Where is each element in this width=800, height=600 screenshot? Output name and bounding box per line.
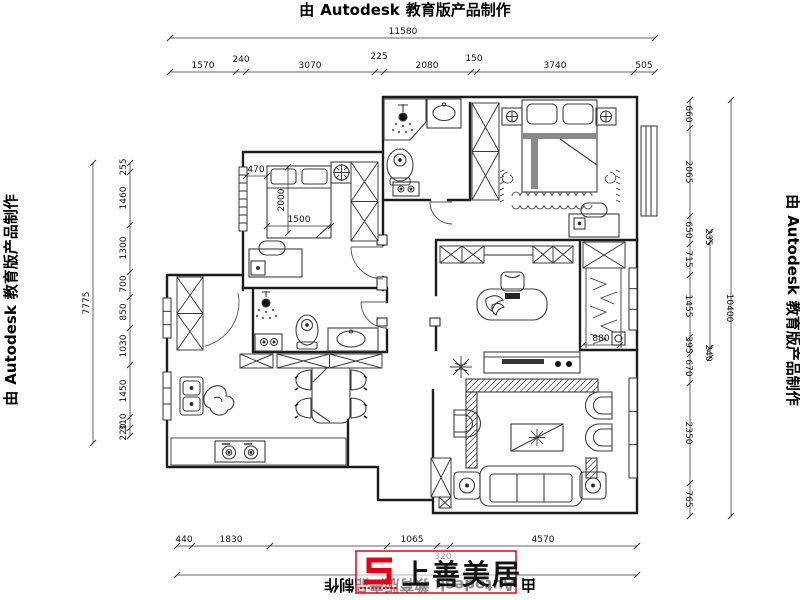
banner-prefix: 由 — [299, 1, 314, 19]
svg-text:由Autodesk教育版产品制作: 由Autodesk教育版产品制作 — [784, 194, 800, 406]
dim-label: 4570 — [532, 535, 555, 545]
dim-label: 470 — [247, 165, 264, 175]
dim-right-segments: 660206565071514553956702350765 — [683, 97, 693, 519]
dim-label: 7775 — [82, 292, 92, 315]
dining-table-icon — [312, 361, 350, 423]
dim-label: 2065 — [683, 161, 693, 184]
window-icon — [629, 378, 637, 478]
door-arc — [430, 202, 452, 224]
tv-feature-wall — [466, 379, 598, 392]
figure-decor — [204, 386, 234, 415]
brand-logo: 上善美居 — [356, 551, 522, 593]
counter — [171, 438, 346, 465]
washer-icon — [393, 182, 419, 196]
desk-icon — [569, 203, 619, 237]
chair-icon — [259, 241, 285, 255]
dim-label: 2350 — [683, 422, 693, 445]
master-bedroom — [500, 100, 620, 237]
dim-top-segments: 1570240307022520801503740505 — [167, 52, 658, 75]
wall-end-caps — [377, 235, 440, 326]
dim-label: 880 — [592, 334, 609, 344]
dim-label: 505 — [635, 61, 652, 71]
dim-label: 255 — [119, 158, 129, 175]
dim-label: 10400 — [724, 294, 734, 323]
window-icon — [163, 372, 171, 420]
side-table-icon — [454, 472, 606, 499]
dim-right-total: 10400 — [724, 97, 734, 519]
dining-chair-icon — [295, 370, 367, 418]
dim-label: 1500 — [288, 215, 311, 225]
bathroom2 — [255, 291, 387, 351]
dim-label: 765 — [683, 490, 693, 507]
dim-label: 660 — [683, 105, 693, 122]
bathroom1 — [384, 99, 461, 224]
stove-icon — [215, 441, 265, 462]
ceiling-lamp-icon — [331, 162, 352, 183]
dim-label: 225 — [370, 52, 387, 62]
washer-icon — [255, 334, 282, 351]
dim-label: 240 — [232, 55, 249, 65]
living-room — [454, 379, 612, 506]
dim-label: 1570 — [192, 61, 215, 71]
autodesk-banner-right: 由Autodesk教育版产品制作 — [784, 194, 800, 406]
autodesk-banner-left: 由Autodesk教育版产品制作 — [2, 194, 20, 406]
dim-left-segments: 2551460130070085010301450310220 — [119, 158, 133, 440]
dim-right-inner: 235240 — [703, 228, 713, 361]
dim-label: 220 — [119, 423, 129, 440]
window-icon — [629, 268, 637, 330]
office-desk-icon — [477, 272, 547, 320]
dim-label: 1450 — [119, 379, 129, 402]
dim-label: 670 — [683, 359, 693, 376]
dim-label: 2000 — [277, 188, 287, 211]
svg-text:由Autodesk教育版产品制作: 由Autodesk教育版产品制作 — [299, 1, 511, 19]
dim-label: 240 — [703, 344, 713, 361]
walls — [167, 97, 637, 513]
office-chair-icon — [501, 272, 524, 291]
dim-left-total: 7775 — [82, 160, 96, 446]
cad-sheet: 由Autodesk教育版产品制作 由Autodesk教育版产品制作 由Autod… — [0, 0, 800, 600]
sofa-icon — [480, 466, 582, 506]
logo-wordmark: 上善美居 — [402, 558, 522, 591]
dim-label: 1455 — [683, 295, 693, 318]
tv-cabinet-icon — [484, 352, 580, 373]
shower-icon — [262, 299, 270, 307]
dim-label: 850 — [119, 303, 129, 320]
nightstand-icon — [502, 108, 616, 125]
chair-icon — [581, 203, 607, 217]
dim-bed-width: 1500 — [264, 215, 334, 229]
dim-label: 440 — [175, 535, 192, 545]
decor-column — [466, 392, 477, 468]
bed-icon — [522, 100, 597, 192]
dim-label: 2080 — [416, 61, 439, 71]
desk-icon — [249, 241, 302, 277]
dim-label: 650 — [683, 221, 693, 238]
dim-label: 715 — [683, 250, 693, 267]
coffee-table-icon — [511, 424, 563, 451]
dim-label: 1300 — [119, 236, 129, 259]
washbasin-icon — [427, 99, 461, 128]
door-arc — [205, 293, 239, 346]
dim-label: 3740 — [544, 61, 567, 71]
dim-label: 700 — [119, 275, 129, 292]
dim-label: 3070 — [299, 61, 322, 71]
bay-window-master — [641, 126, 657, 216]
dim-label: 1030 — [119, 334, 129, 357]
window-icon — [163, 298, 171, 338]
banner-suffix: 教育版产品制作 — [405, 1, 511, 19]
dim-label: 1065 — [401, 535, 424, 545]
dim-label: 395 — [683, 336, 693, 353]
toilet-icon — [387, 149, 413, 185]
decor-column — [586, 458, 597, 478]
dim-bed-length: 2000 — [277, 164, 291, 236]
floorplan-canvas: 由Autodesk教育版产品制作 由Autodesk教育版产品制作 由Autod… — [0, 0, 800, 600]
dim-label: 11580 — [389, 27, 418, 37]
plant-icon — [450, 356, 472, 378]
svg-text:由Autodesk教育版产品制作: 由Autodesk教育版产品制作 — [2, 194, 20, 406]
dim-label: 150 — [465, 54, 482, 64]
toilet-icon — [296, 315, 318, 349]
kitchen-sink-icon — [180, 377, 203, 415]
dining-area — [295, 361, 367, 423]
banner-brand: Autodesk — [320, 1, 401, 19]
dim-label: 1460 — [119, 186, 129, 209]
dim-label: 1830 — [220, 535, 243, 545]
washbasin-icon — [328, 328, 378, 351]
autodesk-banner-top: 由Autodesk教育版产品制作 — [299, 1, 511, 19]
door-arc — [351, 247, 383, 279]
dim-top-total: 11580 — [167, 27, 658, 41]
floor-drain-icon — [612, 332, 625, 345]
dim-label: 235 — [703, 228, 713, 245]
shelf-icon — [484, 246, 533, 255]
